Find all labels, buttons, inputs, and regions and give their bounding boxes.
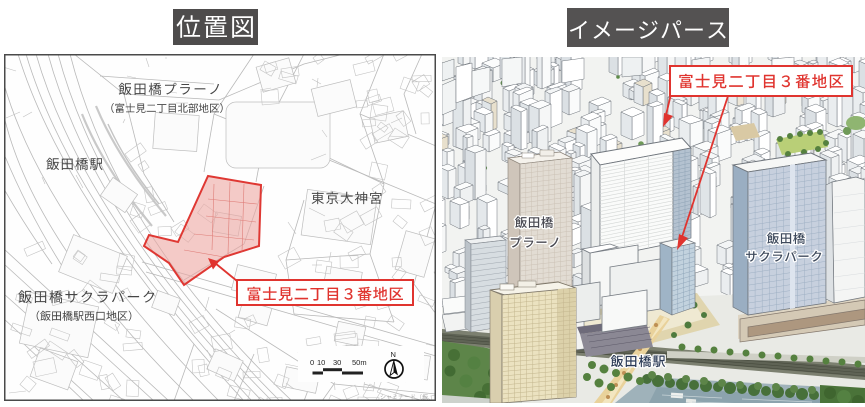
svg-text:0: 0 (310, 358, 314, 367)
svg-text:10: 10 (317, 358, 325, 367)
svg-text:50m: 50m (352, 358, 367, 367)
svg-text:N: N (391, 350, 396, 359)
svg-text:30: 30 (333, 358, 341, 367)
